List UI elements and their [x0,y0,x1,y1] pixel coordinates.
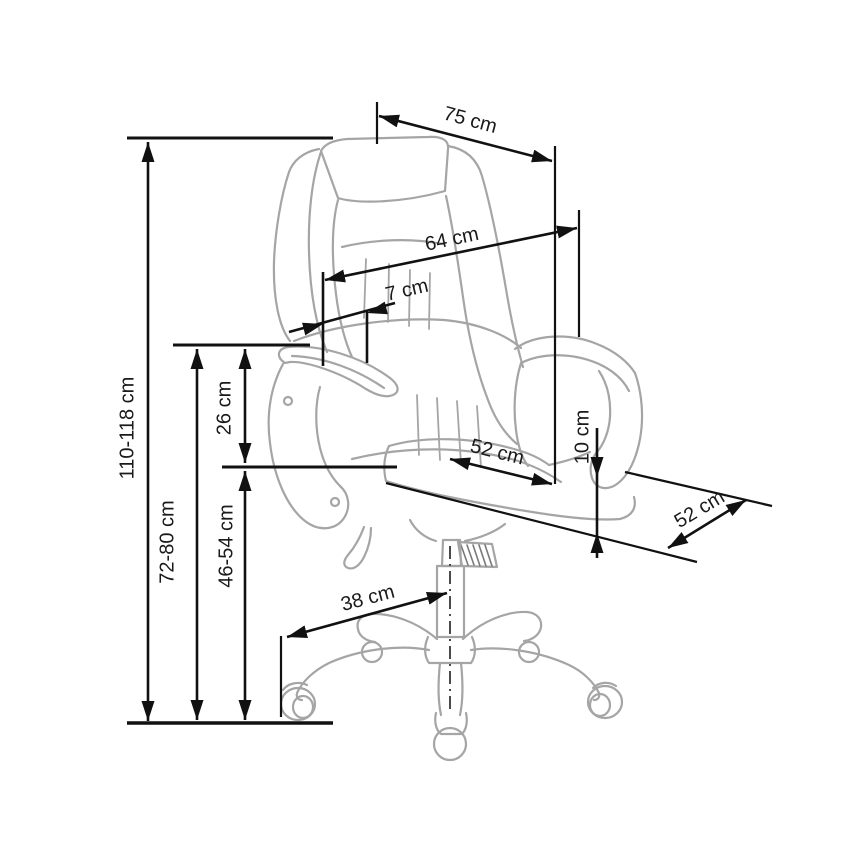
diagram-page: 110-118 cm 72-80 cm 26 cm 46-54 cm 75 cm… [0,0,868,868]
label-base-radius: 38 cm [339,581,397,616]
label-armrest-height: 72-80 cm [156,500,178,583]
tilt-lever [344,527,371,568]
label-total-height: 110-118 cm [116,377,138,480]
dimension-labels: 110-118 cm 72-80 cm 26 cm 46-54 cm 75 cm… [116,103,728,616]
left-armrest-pad-seam [292,356,384,388]
hatch-line [467,545,474,565]
backrest-outer-right-edge [448,146,523,367]
label-armrest-to-seat: 26 cm [213,381,235,435]
bellows-hatch [461,545,492,566]
stitch-line [457,401,461,464]
seat-support-right [465,524,505,541]
stitch-line [437,398,440,460]
left-armrest-pad [279,347,398,397]
dim-headrest-arrow-right [367,302,388,315]
right-armrest-pad-bottom [521,355,629,391]
stitch-line [364,259,366,318]
base-leg-back-right [463,612,541,641]
backrest-lumbar-seam [294,319,521,348]
right-armrest-pad-top [515,337,635,373]
label-backrest-width: 75 cm [441,103,499,138]
stitch-line [417,395,419,455]
hatch-line [485,545,492,566]
backrest-outer-left-edge [274,149,319,341]
base-leg-right [471,648,599,700]
caster-right-hub [590,694,610,716]
ext-seat-depth-lower [386,483,697,562]
caster-left-hub [293,696,313,718]
caster-front-wheel [434,728,466,760]
right-armrest-loop-inner [597,371,610,452]
left-armrest-loop-inner [316,387,340,486]
chair-dimension-diagram: 110-118 cm 72-80 cm 26 cm 46-54 cm 75 cm… [0,0,868,868]
label-seat-cushion: 10 cm [571,410,593,464]
left-armrest-screw [284,397,292,405]
base-leg-back-left [358,614,437,642]
left-armrest-loop-outer [269,364,349,528]
left-armrest-screw [331,498,339,506]
headrest-cushion [321,137,448,202]
hatch-line [479,545,486,566]
label-seat-depth: 52 cm [671,486,729,533]
label-headrest-thickness: 7 cm [383,275,430,306]
seat-support-left [410,520,436,541]
label-seat-height: 46-54 cm [215,504,237,587]
stitch-line [429,273,430,329]
